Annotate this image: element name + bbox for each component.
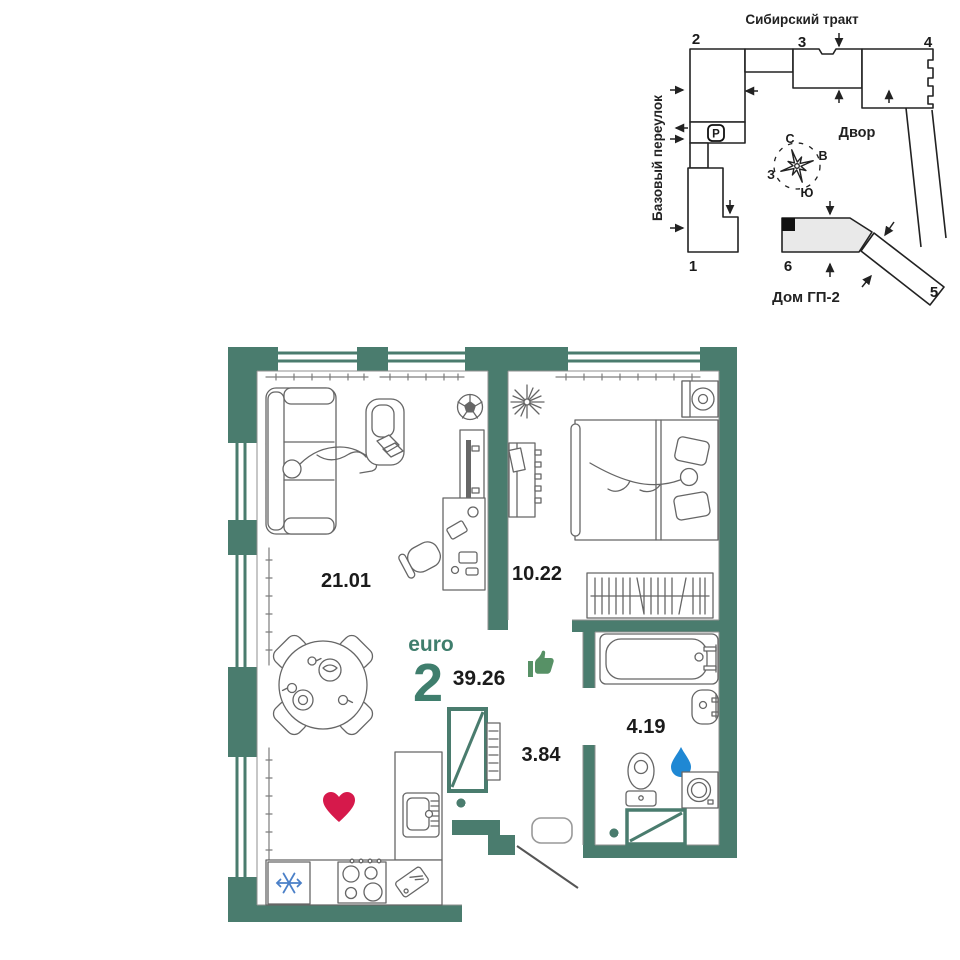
- soccer-ball-icon: [458, 395, 483, 420]
- building-3: [793, 49, 862, 88]
- kitchen: [266, 752, 442, 905]
- building-number-6: 6: [784, 258, 792, 275]
- floor-plan: 21.01: [228, 347, 737, 922]
- entry-rug: [532, 818, 572, 843]
- washing-machine: [682, 772, 718, 808]
- parking-letter: P: [712, 129, 720, 141]
- hallway: 3.84: [449, 709, 578, 888]
- total-area: 39.26: [453, 667, 506, 690]
- parking-badge: P: [708, 125, 724, 141]
- hallway-wardrobe: [449, 709, 486, 791]
- compass-west: З: [767, 168, 775, 182]
- area-label-hallway: 3.84: [522, 744, 562, 766]
- toilet: [626, 753, 656, 806]
- floorplan-canvas: Сибирский тракт Базовый переулок Двор До…: [0, 0, 960, 960]
- bedroom-shelf: [509, 443, 541, 517]
- building-6: [782, 218, 872, 252]
- stove: [338, 859, 386, 903]
- tv-console: [460, 430, 484, 508]
- bathroom: 4.19: [600, 634, 718, 844]
- street-left-label: Базовый переулок: [650, 95, 665, 221]
- area-label-bathroom: 4.19: [627, 716, 666, 738]
- apartment-summary: euro 2 39.26: [408, 633, 553, 713]
- area-label-bedroom: 10.22: [512, 563, 562, 585]
- house-label: Дом ГП-2: [772, 289, 840, 306]
- compass-rose-icon: С В З Ю: [767, 132, 827, 200]
- armchair-pouf: [366, 399, 404, 465]
- building-4: [862, 49, 933, 108]
- building-2-3-connector: [745, 49, 793, 72]
- street-top-label: Сибирский тракт: [745, 12, 859, 27]
- building-2: [690, 49, 745, 122]
- laundry-box: [627, 810, 685, 844]
- site-plan: Сибирский тракт Базовый переулок Двор До…: [650, 12, 946, 306]
- bedroom-wardrobe: [587, 573, 713, 618]
- rooms-count: 2: [413, 653, 443, 713]
- desk: [443, 498, 485, 590]
- bathroom-sink: [692, 690, 718, 724]
- bedroom-appliance: [682, 381, 718, 417]
- sofa: [266, 388, 336, 534]
- dining-table: [270, 632, 376, 738]
- bathtub: [600, 634, 718, 684]
- thumbs-up-icon: [528, 651, 554, 677]
- compass-north: С: [785, 132, 794, 146]
- building-number-1: 1: [689, 258, 697, 275]
- building-number-4: 4: [924, 34, 933, 51]
- compass-east: В: [818, 149, 827, 163]
- courtyard-label: Двор: [839, 125, 876, 141]
- kitchen-sink: [403, 793, 439, 837]
- bedroom: 10.22: [509, 381, 718, 618]
- left-wing: [690, 143, 708, 168]
- building-number-5: 5: [930, 284, 938, 301]
- heart-icon: [323, 792, 355, 822]
- compass-south: Ю: [801, 186, 814, 200]
- shoe-bench: [487, 723, 500, 780]
- building-number-2: 2: [692, 31, 700, 48]
- desk-chair: [398, 538, 445, 579]
- fridge: [268, 862, 310, 904]
- apartment-location-marker: [782, 218, 795, 231]
- floorplan-page: Сибирский тракт Базовый переулок Двор До…: [0, 0, 960, 960]
- building-number-3: 3: [798, 34, 806, 51]
- entry-door: [517, 846, 578, 888]
- plant: [511, 385, 544, 418]
- area-label-living: 21.01: [321, 570, 371, 592]
- road-lines: [906, 108, 946, 247]
